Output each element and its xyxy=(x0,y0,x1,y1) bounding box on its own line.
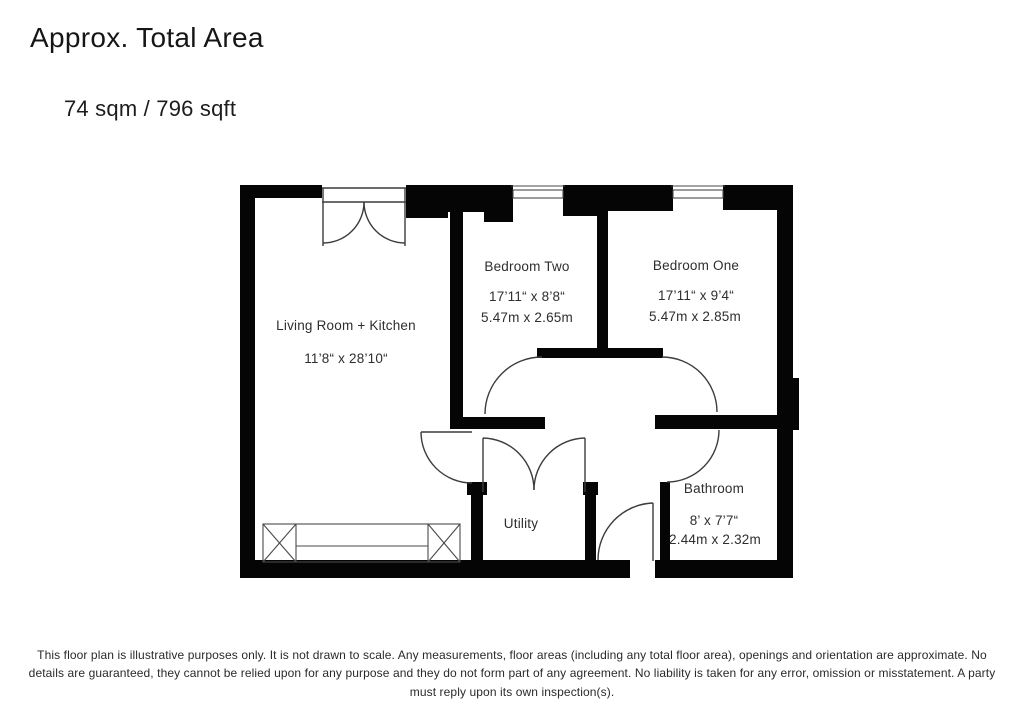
door-swing-bathroom xyxy=(667,430,719,482)
door-living-room xyxy=(421,432,472,483)
wall-bathroom-top xyxy=(655,415,777,429)
floor-plan: Living Room + Kitchen 11’8“ x 28’10“ Bed… xyxy=(0,0,1024,712)
wall-bottom-left xyxy=(240,560,630,578)
wall-hall-lower-left xyxy=(450,417,545,429)
door-swing-right-leaf xyxy=(364,202,405,243)
disclaimer-line-2: details are guaranteed, they cannot be r… xyxy=(0,664,1024,682)
door-utility-double xyxy=(483,438,585,492)
wall-right-bump xyxy=(793,378,799,430)
disclaimer: This floor plan is illustrative purposes… xyxy=(0,646,1024,701)
wall-bathroom-left xyxy=(660,482,670,562)
room-utility: Utility xyxy=(504,516,538,531)
utility-label: Utility xyxy=(504,516,538,531)
room-bedroom-one: Bedroom One 17’11“ x 9’4“ 5.47m x 2.85m xyxy=(649,258,741,324)
door-entrance xyxy=(598,503,653,561)
bedroom-two-dims-imperial: 17’11“ x 8’8“ xyxy=(489,289,565,304)
disclaimer-line-3: must reply upon its own inspection(s). xyxy=(0,683,1024,701)
wall-left xyxy=(240,185,255,578)
living-room-dims-imperial: 11’8“ x 28’10“ xyxy=(304,351,388,366)
window-bed1 xyxy=(671,186,725,198)
bedroom-two-dims-metric: 5.47m x 2.65m xyxy=(481,310,573,325)
french-door xyxy=(322,188,406,246)
bedroom-two-label: Bedroom Two xyxy=(484,259,569,274)
bathroom-dims-metric: 2.44m x 2.32m xyxy=(669,532,761,547)
wall-bedroom-divider xyxy=(597,205,608,358)
wall-top-pillar xyxy=(406,185,448,218)
fitted-unit xyxy=(263,524,460,562)
window-bed2 xyxy=(511,186,565,198)
wall-bottom-right xyxy=(655,560,793,578)
disclaimer-line-1: This floor plan is illustrative purposes… xyxy=(0,646,1024,664)
bedroom-one-label: Bedroom One xyxy=(653,258,739,273)
bathroom-label: Bathroom xyxy=(684,481,744,496)
door-swing-left-leaf xyxy=(323,202,364,243)
wall-right xyxy=(777,185,793,578)
room-bedroom-two: Bedroom Two 17’11“ x 8’8“ 5.47m x 2.65m xyxy=(481,259,573,325)
bathroom-dims-imperial: 8’ x 7’7“ xyxy=(690,513,739,528)
room-living: Living Room + Kitchen 11’8“ x 28’10“ xyxy=(276,318,416,366)
bedroom-one-dims-imperial: 17’11“ x 9’4“ xyxy=(658,288,734,303)
wall-bed2-left xyxy=(450,212,463,418)
door-swing-bedroom-two xyxy=(485,357,542,414)
wall-hall-mid xyxy=(537,348,663,358)
wall-utility-left xyxy=(471,493,483,562)
room-bathroom: Bathroom 8’ x 7’7“ 2.44m x 2.32m xyxy=(669,481,761,547)
bedroom-one-dims-metric: 5.47m x 2.85m xyxy=(649,309,741,324)
living-room-label: Living Room + Kitchen xyxy=(276,318,416,333)
wall-top-bed2-step xyxy=(484,198,513,222)
wall-top-between-windows-step xyxy=(563,198,600,216)
wall-utility-right xyxy=(585,493,596,562)
door-swing-bedroom-one xyxy=(662,357,717,412)
